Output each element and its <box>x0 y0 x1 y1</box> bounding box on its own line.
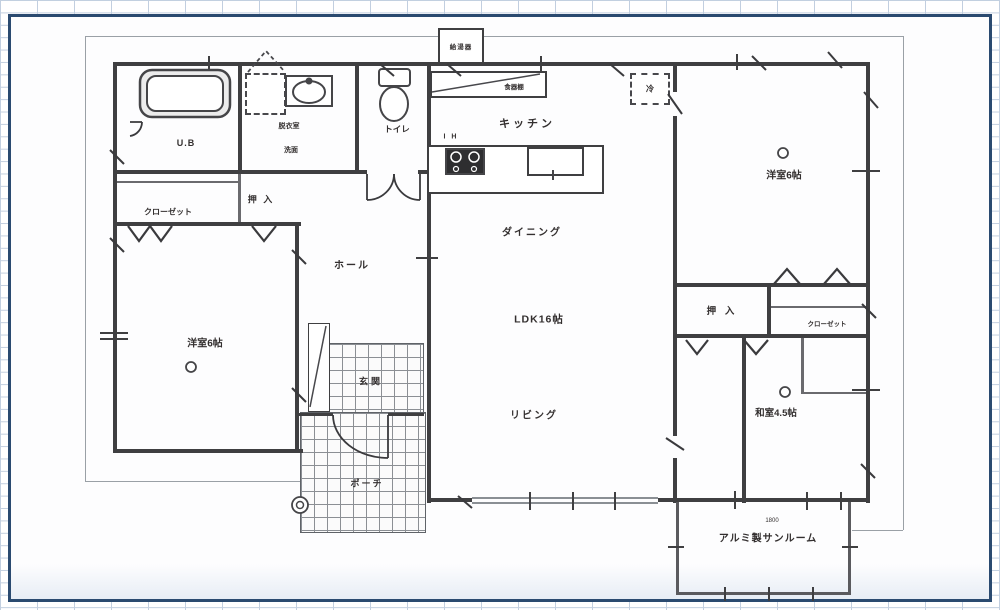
room-label-dining: ダイニング <box>502 224 562 239</box>
water-heater-box: 給湯器 <box>438 28 484 64</box>
room-label-sunroom: アルミ製サンルーム <box>719 530 818 545</box>
room-label-genkan: 玄関 <box>359 375 383 388</box>
window-tick <box>736 54 738 70</box>
dimension-1800: 1800 <box>765 518 778 524</box>
window-tick <box>100 332 128 334</box>
window-tick <box>812 587 814 601</box>
sunroom-wall-right <box>848 502 851 595</box>
sliding-window-line-2 <box>472 502 658 504</box>
window-tick <box>614 492 616 510</box>
room-label-ub: U.B <box>177 138 196 148</box>
ih-label: I H <box>444 134 459 141</box>
window-tick <box>852 170 880 172</box>
room-label-dressing: 脱衣室 <box>279 121 300 131</box>
wall-bath-right <box>238 62 242 174</box>
water-heater-label: 給湯器 <box>450 41 473 51</box>
cupboard-box: 食器棚 <box>430 71 547 98</box>
wall-bottom-b <box>658 498 870 502</box>
porch-tile-floor <box>300 412 426 533</box>
room-label-western-right: 洋室6帖 <box>766 167 802 182</box>
site-boundary-left <box>85 36 86 481</box>
site-boundary-bottom-right <box>852 530 903 531</box>
wall-dressing-right <box>355 62 359 174</box>
wall-ldk-right-c <box>673 458 677 503</box>
room-label-living: リビング <box>510 407 558 422</box>
room-label-oshiire-right: 押 入 <box>707 303 738 317</box>
window-tick <box>852 389 880 391</box>
room-label-porch: ポーチ <box>350 477 383 490</box>
wall-ldk-right-b <box>673 116 677 436</box>
room-label-kitchen: キッチン <box>499 115 555 131</box>
wall-porch-front-b <box>388 413 424 416</box>
window-tick <box>540 56 542 72</box>
window-tick <box>768 587 770 601</box>
wall-ldk-right-a <box>673 62 677 92</box>
window-tick <box>724 587 726 601</box>
window-tick <box>668 546 684 548</box>
wall-closet-row-bottom <box>113 222 301 226</box>
room-label-closet-left: クローゼット <box>144 207 192 218</box>
window-tick <box>416 257 438 259</box>
room-label-oshiire-left: 押 入 <box>248 193 275 206</box>
site-boundary-top <box>85 36 903 37</box>
wall-notch-horizontal <box>801 392 868 394</box>
room-label-closet-right: クローゼット <box>808 318 847 328</box>
wall-west-room-right <box>295 222 299 453</box>
plan-canvas <box>8 14 992 602</box>
wall-porch-front-a <box>299 413 333 416</box>
closet-inner-line-right <box>767 306 868 308</box>
wall-top <box>113 62 870 66</box>
window-tick <box>529 492 531 510</box>
room-label-washstand: 洗面 <box>284 145 298 155</box>
site-boundary-right <box>903 36 904 530</box>
wall-storage-row-bottom <box>673 334 870 338</box>
room-label-toilet: トイレ <box>384 123 410 135</box>
wall-bottom-a <box>427 498 472 502</box>
window-tick <box>840 492 842 510</box>
window-tick <box>734 491 736 509</box>
wall-storage-divider <box>767 283 771 338</box>
cupboard-label: 食器棚 <box>504 81 524 91</box>
window-tick <box>572 492 574 510</box>
sunroom-wall-bottom <box>676 592 851 595</box>
window-tick <box>806 492 808 510</box>
sunroom-wall-left <box>676 502 679 595</box>
closet-inner-line-left <box>115 181 238 183</box>
room-label-western-left: 洋室6帖 <box>187 335 223 350</box>
fridge-label: 冷 <box>646 84 654 95</box>
window-tick <box>208 56 210 72</box>
wall-storage-row-top <box>673 283 870 287</box>
shoe-cabinet <box>308 323 330 412</box>
wall-west-room-bottom <box>113 449 303 453</box>
room-label-washitsu: 和室4.5帖 <box>755 405 797 419</box>
room-label-ldk: LDK16帖 <box>514 312 564 327</box>
window-tick <box>842 546 858 548</box>
wall-left <box>113 62 117 453</box>
site-boundary-bottom-left <box>85 481 300 482</box>
floor-plan-page: { "plan": { "labels": { "ub": "U.B", "dr… <box>0 0 1000 610</box>
wall-notch-vertical <box>801 338 804 394</box>
wall-washitsu-divider <box>742 338 746 503</box>
fridge-box: 冷 <box>630 73 670 105</box>
window-tick <box>100 338 128 340</box>
wall-ldk-left-b <box>427 168 431 503</box>
washing-machine-box <box>245 73 286 115</box>
room-label-hall: ホール <box>334 257 370 272</box>
sliding-window-line-1 <box>472 497 658 499</box>
kitchen-sink <box>527 147 584 176</box>
wall-closet-divider-left <box>238 174 241 222</box>
